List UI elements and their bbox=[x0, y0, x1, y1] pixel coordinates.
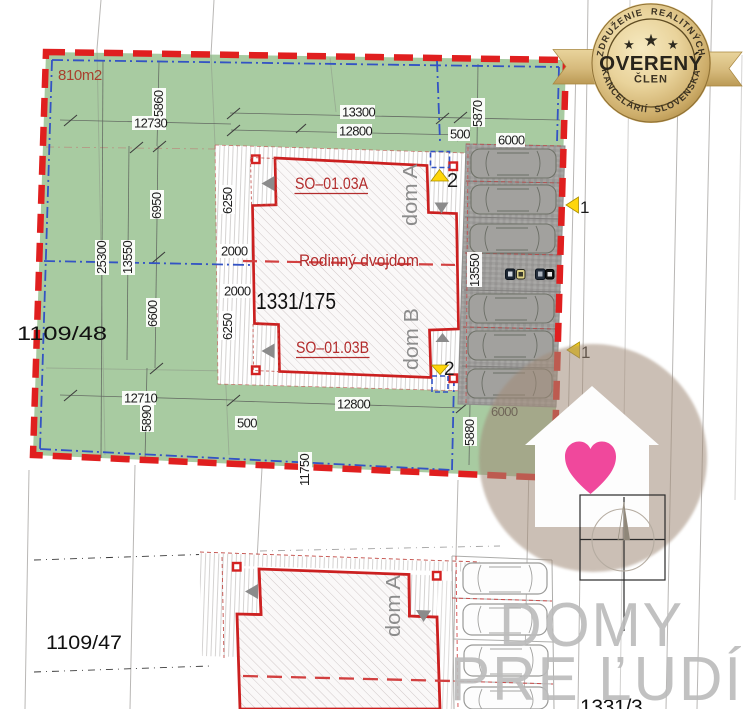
svg-text:11750: 11750 bbox=[297, 453, 312, 486]
svg-text:1109/47: 1109/47 bbox=[46, 633, 122, 654]
svg-text:dom A: dom A bbox=[383, 574, 405, 637]
svg-text:1331/175: 1331/175 bbox=[256, 288, 336, 314]
svg-text:OVERENÝ: OVERENÝ bbox=[599, 51, 703, 75]
svg-text:SO–01.03A: SO–01.03A bbox=[295, 174, 369, 193]
svg-text:12800: 12800 bbox=[337, 397, 371, 412]
svg-text:13550: 13550 bbox=[467, 253, 482, 287]
svg-text:2000: 2000 bbox=[221, 244, 248, 259]
svg-text:6000: 6000 bbox=[498, 133, 525, 148]
svg-text:6250: 6250 bbox=[220, 187, 235, 214]
svg-text:6600: 6600 bbox=[145, 300, 160, 327]
svg-text:13300: 13300 bbox=[342, 105, 376, 120]
svg-text:13550: 13550 bbox=[120, 240, 135, 274]
svg-text:dom B: dom B bbox=[401, 308, 423, 370]
svg-text:500: 500 bbox=[450, 127, 470, 142]
svg-text:2: 2 bbox=[444, 359, 454, 380]
svg-text:5870: 5870 bbox=[470, 100, 485, 127]
svg-text:12800: 12800 bbox=[339, 124, 373, 139]
svg-text:5890: 5890 bbox=[139, 405, 154, 432]
svg-text:PRE ĽUDÍ: PRE ĽUDÍ bbox=[450, 645, 743, 709]
svg-text:1109/48: 1109/48 bbox=[17, 324, 107, 345]
svg-text:2000: 2000 bbox=[224, 284, 251, 299]
svg-text:★: ★ bbox=[667, 37, 679, 52]
svg-text:25300: 25300 bbox=[94, 240, 109, 274]
svg-text:ČLEN: ČLEN bbox=[634, 73, 668, 86]
svg-text:dom A: dom A bbox=[400, 163, 422, 226]
svg-text:810m2: 810m2 bbox=[58, 67, 102, 84]
svg-text:2: 2 bbox=[447, 170, 458, 192]
svg-text:Rodinný dvojdom: Rodinný dvojdom bbox=[299, 251, 419, 270]
svg-text:5880: 5880 bbox=[462, 419, 477, 446]
svg-text:1: 1 bbox=[580, 198, 589, 217]
svg-text:SO–01.03B: SO–01.03B bbox=[296, 338, 369, 357]
svg-text:5860: 5860 bbox=[151, 90, 166, 117]
svg-text:500: 500 bbox=[237, 416, 257, 431]
svg-text:★: ★ bbox=[623, 37, 635, 52]
svg-text:★: ★ bbox=[643, 31, 658, 50]
svg-text:6250: 6250 bbox=[220, 313, 235, 340]
svg-text:6950: 6950 bbox=[149, 192, 164, 219]
